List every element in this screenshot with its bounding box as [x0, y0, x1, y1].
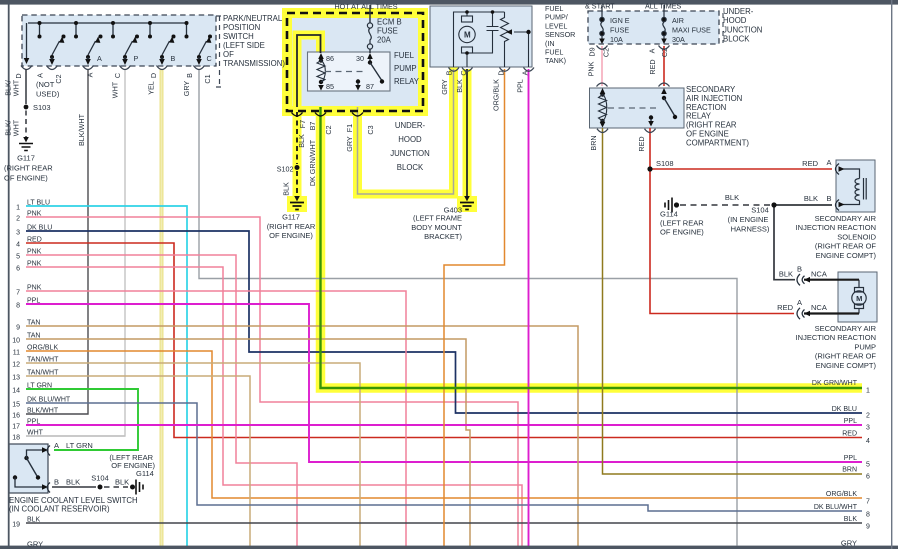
svg-text:HOT AT ALL TIMES: HOT AT ALL TIMES — [334, 2, 397, 11]
svg-text:2: 2 — [16, 216, 20, 223]
svg-text:B7: B7 — [308, 122, 317, 131]
svg-text:BODY MOUNT: BODY MOUNT — [411, 223, 462, 232]
svg-text:D9: D9 — [588, 47, 597, 56]
svg-text:LT BLU: LT BLU — [27, 200, 50, 207]
svg-text:10: 10 — [12, 338, 20, 345]
svg-text:PUMP/: PUMP/ — [545, 13, 568, 22]
svg-text:S108: S108 — [656, 159, 674, 168]
svg-text:POSITION: POSITION — [223, 23, 260, 32]
svg-text:85: 85 — [326, 82, 334, 91]
svg-text:LT GRN: LT GRN — [66, 441, 93, 450]
svg-text:AIR INJECTION: AIR INJECTION — [686, 94, 742, 103]
svg-text:BLK: BLK — [27, 517, 41, 524]
svg-text:A: A — [86, 72, 95, 77]
svg-text:JUNCTION: JUNCTION — [723, 25, 762, 34]
svg-text:SECONDARY AIR: SECONDARY AIR — [815, 214, 877, 223]
svg-text:C2: C2 — [660, 48, 669, 57]
svg-text:DK BLU: DK BLU — [27, 225, 52, 232]
svg-text:FUEL: FUEL — [545, 48, 563, 57]
svg-text:D: D — [14, 73, 23, 78]
svg-text:TAN: TAN — [27, 333, 40, 340]
svg-text:BRN: BRN — [589, 135, 598, 150]
svg-text:B: B — [185, 73, 194, 78]
svg-text:LT GRN: LT GRN — [27, 383, 52, 390]
svg-text:ORG/BLK: ORG/BLK — [826, 491, 857, 498]
svg-text:SWITCH: SWITCH — [223, 32, 254, 41]
svg-text:GRY: GRY — [440, 79, 449, 95]
svg-text:PUMP: PUMP — [854, 342, 876, 351]
svg-text:3: 3 — [16, 230, 20, 237]
svg-text:LEVEL: LEVEL — [545, 21, 567, 30]
svg-text:BLK: BLK — [779, 269, 793, 278]
svg-text:(RIGHT REAR OF: (RIGHT REAR OF — [815, 352, 877, 361]
svg-text:OF ENGINE: OF ENGINE — [686, 130, 729, 139]
svg-text:(LEFT REAR: (LEFT REAR — [660, 218, 704, 227]
svg-text:SOLENOID: SOLENOID — [837, 232, 876, 241]
svg-text:HOOD: HOOD — [723, 16, 747, 25]
svg-text:RED: RED — [648, 59, 657, 74]
svg-text:BLK: BLK — [115, 478, 129, 487]
svg-text:12: 12 — [12, 362, 20, 369]
svg-text:P: P — [134, 54, 139, 63]
svg-text:A: A — [827, 158, 832, 167]
svg-text:USED): USED) — [36, 90, 60, 99]
svg-text:SECONDARY: SECONDARY — [686, 85, 736, 94]
svg-text:PNK: PNK — [27, 211, 42, 218]
svg-text:PNK: PNK — [587, 61, 596, 76]
svg-text:BLK: BLK — [844, 516, 858, 523]
svg-text:F7: F7 — [298, 120, 307, 128]
svg-text:B: B — [445, 70, 454, 75]
svg-text:7: 7 — [866, 499, 870, 506]
svg-text:PUMP: PUMP — [394, 64, 417, 73]
svg-text:TRANSMISSION): TRANSMISSION) — [223, 59, 285, 68]
svg-text:11: 11 — [13, 350, 20, 357]
svg-text:RED: RED — [802, 159, 818, 168]
svg-text:PPL: PPL — [27, 298, 40, 305]
svg-text:OF ENGINE): OF ENGINE) — [4, 174, 48, 183]
svg-text:WHT: WHT — [12, 119, 21, 136]
svg-text:(RIGHT REAR: (RIGHT REAR — [686, 121, 737, 130]
svg-text:C2: C2 — [324, 125, 333, 134]
svg-text:OF ENGINE): OF ENGINE) — [111, 461, 155, 470]
svg-text:C2: C2 — [54, 74, 63, 83]
svg-text:AIR: AIR — [672, 16, 684, 25]
svg-text:SENSOR: SENSOR — [545, 30, 575, 39]
svg-text:17: 17 — [12, 424, 20, 431]
svg-text:30: 30 — [356, 54, 364, 63]
svg-text:(RIGHT REAR: (RIGHT REAR — [267, 222, 316, 231]
svg-text:BLOCK: BLOCK — [723, 35, 750, 44]
svg-text:TAN/WHT: TAN/WHT — [27, 370, 59, 377]
svg-text:1: 1 — [16, 205, 20, 212]
svg-text:FUSE: FUSE — [610, 26, 629, 35]
svg-text:YEL: YEL — [147, 81, 156, 95]
svg-text:B: B — [827, 194, 832, 203]
svg-text:FUEL: FUEL — [394, 51, 415, 60]
svg-text:B: B — [171, 54, 176, 63]
svg-text:RED: RED — [777, 303, 793, 312]
svg-text:BLK/WHT: BLK/WHT — [77, 113, 86, 146]
svg-text:(IN COOLANT RESERVOIR): (IN COOLANT RESERVOIR) — [9, 505, 110, 514]
svg-text:15: 15 — [12, 402, 20, 409]
svg-text:FUSE: FUSE — [377, 27, 398, 36]
svg-text:IGN E: IGN E — [610, 16, 630, 25]
svg-text:C2: C2 — [602, 48, 611, 57]
svg-text:GRY: GRY — [841, 539, 857, 548]
svg-text:BLK/WHT: BLK/WHT — [27, 408, 59, 415]
svg-text:RED: RED — [27, 237, 42, 244]
svg-text:SECONDARY AIR: SECONDARY AIR — [815, 324, 877, 333]
svg-text:6: 6 — [866, 474, 870, 481]
svg-text:BLK: BLK — [455, 79, 464, 93]
svg-text:19: 19 — [12, 522, 20, 529]
svg-text:REACTION: REACTION — [686, 103, 726, 112]
svg-text:MAXI FUSE: MAXI FUSE — [672, 26, 711, 35]
svg-text:TAN/WHT: TAN/WHT — [27, 357, 59, 364]
svg-text:A: A — [797, 298, 802, 307]
svg-text:C3: C3 — [366, 125, 375, 134]
svg-text:RED: RED — [842, 431, 857, 438]
svg-text:86: 86 — [326, 54, 334, 63]
svg-text:M: M — [464, 31, 471, 40]
svg-text:PPL: PPL — [27, 419, 40, 426]
svg-text:GRY: GRY — [345, 136, 354, 152]
svg-text:DK BLU/WHT: DK BLU/WHT — [814, 504, 858, 511]
svg-text:JUNCTION: JUNCTION — [390, 149, 429, 158]
svg-text:5: 5 — [16, 254, 20, 261]
svg-text:S102: S102 — [277, 165, 294, 174]
svg-text:ALL TIMES: ALL TIMES — [645, 2, 682, 11]
svg-text:8: 8 — [866, 512, 870, 519]
svg-text:PPL: PPL — [516, 79, 525, 93]
svg-text:(LEFT FRAME: (LEFT FRAME — [413, 214, 462, 223]
svg-text:A: A — [54, 441, 59, 450]
svg-text:(NOT: (NOT — [36, 80, 55, 89]
svg-text:3: 3 — [866, 425, 870, 432]
svg-text:RELAY: RELAY — [394, 77, 420, 86]
svg-text:C: C — [459, 70, 468, 75]
svg-text:S104: S104 — [751, 206, 769, 215]
svg-text:PNK: PNK — [27, 285, 42, 292]
svg-text:A: A — [36, 73, 45, 78]
svg-text:ENGINE COMPT): ENGINE COMPT) — [816, 361, 877, 370]
svg-text:A: A — [648, 48, 657, 53]
svg-text:2: 2 — [866, 413, 870, 420]
svg-text:D: D — [497, 70, 506, 75]
svg-text:HOOD: HOOD — [398, 135, 422, 144]
svg-text:BRACKET): BRACKET) — [424, 232, 462, 241]
svg-text:7: 7 — [16, 290, 20, 297]
svg-text:4: 4 — [16, 242, 20, 249]
svg-text:& START: & START — [585, 2, 615, 11]
svg-text:14: 14 — [12, 388, 20, 395]
svg-text:PARK/NEUTRAL: PARK/NEUTRAL — [223, 14, 283, 23]
svg-text:S104: S104 — [91, 474, 109, 483]
svg-text:20A: 20A — [377, 36, 392, 45]
svg-text:10A: 10A — [610, 35, 623, 44]
svg-text:DK BLU/WHT: DK BLU/WHT — [27, 397, 71, 404]
svg-text:NCA: NCA — [811, 303, 827, 312]
svg-text:INJECTION REACTION: INJECTION REACTION — [796, 333, 876, 342]
svg-text:UNDER-: UNDER- — [723, 7, 754, 16]
svg-text:WHT: WHT — [27, 430, 44, 437]
svg-text:COMPARTMENT): COMPARTMENT) — [686, 138, 749, 147]
svg-text:C: C — [113, 73, 122, 78]
svg-text:OF: OF — [223, 50, 234, 59]
svg-text:OF ENGINE): OF ENGINE) — [269, 231, 313, 240]
svg-text:C1: C1 — [203, 74, 212, 83]
svg-text:PPL: PPL — [844, 418, 857, 425]
svg-text:ENGINE COMPT): ENGINE COMPT) — [816, 251, 877, 260]
svg-text:BLK: BLK — [282, 182, 291, 196]
svg-text:4: 4 — [866, 438, 870, 445]
svg-text:PNK: PNK — [27, 249, 42, 256]
svg-text:G117: G117 — [282, 213, 300, 222]
svg-text:S103: S103 — [33, 103, 51, 112]
svg-text:BLK: BLK — [66, 478, 80, 487]
svg-text:WHT: WHT — [12, 79, 21, 96]
svg-text:NCA: NCA — [811, 269, 827, 278]
svg-text:18: 18 — [12, 435, 20, 442]
svg-text:A: A — [97, 54, 102, 63]
svg-text:GRY: GRY — [27, 540, 43, 549]
svg-text:BLK: BLK — [297, 134, 306, 148]
svg-text:(RIGHT REAR OF: (RIGHT REAR OF — [815, 242, 877, 251]
svg-text:DK GRN/WHT: DK GRN/WHT — [308, 139, 317, 186]
svg-text:BLK: BLK — [804, 194, 818, 203]
svg-text:ECM B: ECM B — [377, 18, 402, 27]
svg-text:M: M — [856, 294, 862, 303]
svg-text:G117: G117 — [17, 154, 35, 163]
svg-text:6: 6 — [16, 266, 20, 273]
svg-text:A: A — [521, 70, 530, 75]
svg-text:8: 8 — [16, 303, 20, 310]
svg-text:PNK: PNK — [27, 261, 42, 268]
svg-text:BLOCK: BLOCK — [397, 163, 424, 172]
svg-text:(LEFT SIDE: (LEFT SIDE — [223, 41, 265, 50]
svg-text:(RIGHT REAR: (RIGHT REAR — [4, 164, 53, 173]
svg-text:5: 5 — [866, 462, 870, 469]
svg-text:OF ENGINE): OF ENGINE) — [660, 227, 704, 236]
svg-text:ORG/BLK: ORG/BLK — [492, 79, 501, 111]
svg-text:WHT: WHT — [111, 81, 120, 98]
svg-text:B: B — [797, 264, 802, 273]
svg-text:RED: RED — [637, 136, 646, 151]
svg-text:D: D — [149, 73, 158, 78]
svg-text:TANK): TANK) — [545, 56, 566, 65]
svg-text:GRY: GRY — [182, 81, 191, 97]
svg-text:(IN ENGINE: (IN ENGINE — [728, 215, 769, 224]
svg-text:BLK: BLK — [725, 193, 739, 202]
svg-text:13: 13 — [12, 375, 20, 382]
svg-text:RELAY: RELAY — [686, 112, 712, 121]
svg-text:C: C — [207, 54, 212, 63]
svg-text:G114: G114 — [136, 469, 154, 478]
svg-text:G114: G114 — [660, 210, 678, 219]
svg-text:30A: 30A — [672, 35, 685, 44]
svg-text:INJECTION REACTION: INJECTION REACTION — [796, 223, 876, 232]
svg-text:B: B — [54, 478, 59, 487]
svg-text:87: 87 — [366, 82, 374, 91]
svg-text:9: 9 — [866, 524, 870, 531]
svg-text:16: 16 — [12, 413, 20, 420]
svg-text:DK BLU: DK BLU — [832, 406, 857, 413]
svg-text:FUEL: FUEL — [545, 4, 563, 13]
svg-text:UNDER-: UNDER- — [395, 121, 426, 130]
svg-text:9: 9 — [16, 325, 20, 332]
svg-text:DK GRN/WHT: DK GRN/WHT — [812, 380, 858, 387]
svg-text:ORG/BLK: ORG/BLK — [27, 345, 58, 352]
svg-text:BRN: BRN — [842, 467, 857, 474]
svg-text:HARNESS): HARNESS) — [731, 225, 770, 234]
svg-text:(IN: (IN — [545, 39, 555, 48]
svg-text:TAN: TAN — [27, 320, 40, 327]
svg-text:F1: F1 — [345, 124, 354, 132]
svg-text:PPL: PPL — [844, 455, 857, 462]
svg-text:1: 1 — [866, 388, 870, 395]
